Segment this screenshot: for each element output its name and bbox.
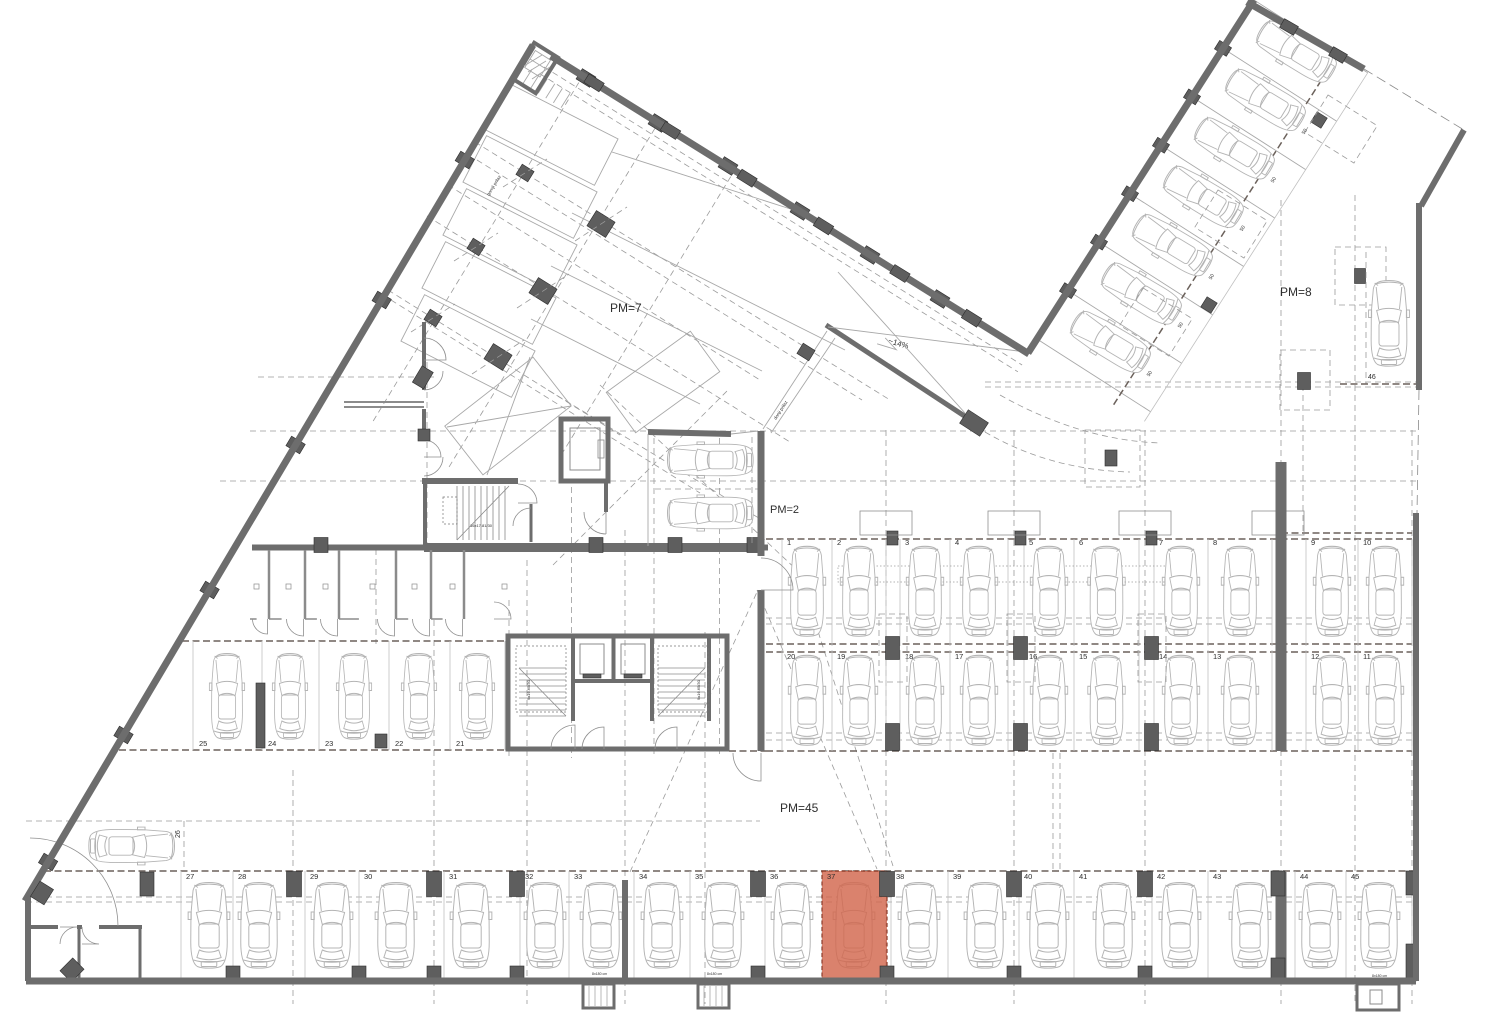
svg-text:41: 41 (1079, 872, 1087, 881)
svg-text:PM=7: PM=7 (610, 301, 642, 315)
svg-text:2: 2 (837, 538, 841, 547)
svg-text:8: 8 (1213, 538, 1217, 547)
svg-text:PM=8: PM=8 (1280, 285, 1312, 299)
svg-text:8x180 cm: 8x180 cm (1372, 974, 1387, 978)
svg-text:3: 3 (905, 538, 909, 547)
svg-text:26: 26 (175, 830, 182, 838)
svg-text:9: 9 (1311, 538, 1315, 547)
svg-text:16x17.81/30: 16x17.81/30 (470, 523, 493, 528)
svg-text:46: 46 (1368, 374, 1376, 381)
svg-text:PM=2: PM=2 (770, 504, 799, 516)
svg-text:7: 7 (1159, 538, 1163, 547)
svg-text:PM=45: PM=45 (780, 801, 819, 815)
svg-text:4: 4 (955, 538, 959, 547)
svg-text:18: 18 (905, 652, 913, 661)
svg-text:11: 11 (1363, 652, 1371, 661)
svg-text:35: 35 (695, 872, 703, 881)
svg-text:42: 42 (1157, 872, 1165, 881)
svg-text:38: 38 (896, 872, 904, 881)
svg-text:9x16.65/30: 9x16.65/30 (696, 679, 701, 700)
svg-text:23: 23 (325, 739, 333, 748)
svg-text:16: 16 (1029, 652, 1037, 661)
svg-text:45: 45 (1351, 872, 1359, 881)
svg-text:19: 19 (837, 652, 845, 661)
svg-text:10: 10 (1363, 538, 1371, 547)
svg-text:34: 34 (639, 872, 647, 881)
svg-text:44: 44 (1300, 872, 1308, 881)
svg-text:6: 6 (1079, 538, 1083, 547)
svg-text:25: 25 (199, 739, 207, 748)
svg-text:28: 28 (238, 872, 246, 881)
svg-text:40: 40 (1024, 872, 1032, 881)
svg-text:29: 29 (310, 872, 318, 881)
svg-text:12: 12 (1311, 652, 1319, 661)
svg-text:17: 17 (955, 652, 963, 661)
svg-text:27: 27 (186, 872, 194, 881)
svg-text:32: 32 (525, 872, 533, 881)
svg-text:24: 24 (268, 739, 276, 748)
svg-text:21: 21 (456, 739, 464, 748)
svg-text:36: 36 (770, 872, 778, 881)
svg-text:20: 20 (787, 652, 795, 661)
svg-text:31: 31 (449, 872, 457, 881)
svg-text:8x180 cm: 8x180 cm (592, 972, 607, 976)
svg-text:15: 15 (1079, 652, 1087, 661)
svg-text:13: 13 (1213, 652, 1221, 661)
svg-text:30: 30 (364, 872, 372, 881)
svg-text:22: 22 (395, 739, 403, 748)
svg-text:8x180 cm: 8x180 cm (707, 972, 722, 976)
svg-text:43: 43 (1213, 872, 1221, 881)
svg-text:39: 39 (953, 872, 961, 881)
svg-text:37: 37 (827, 872, 835, 881)
svg-text:9x16.65/30: 9x16.65/30 (526, 679, 531, 700)
svg-text:33: 33 (574, 872, 582, 881)
svg-text:5: 5 (1029, 538, 1033, 547)
svg-text:1: 1 (787, 538, 791, 547)
